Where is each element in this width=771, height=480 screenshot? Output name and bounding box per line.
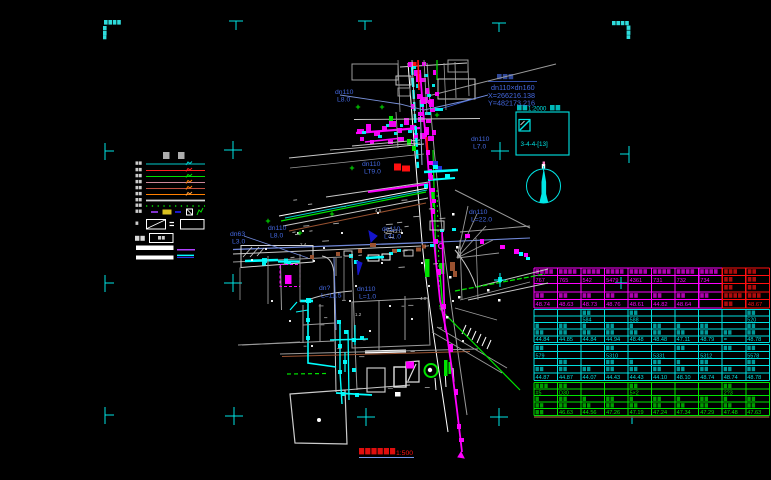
svg-text:LT9.0: LT9.0 (364, 169, 381, 176)
svg-text:47.26: 47.26 (606, 410, 620, 416)
svg-text:4361: 4361 (630, 278, 642, 284)
svg-text:48.48: 48.48 (653, 337, 667, 343)
svg-text:48.74: 48.74 (700, 375, 714, 381)
svg-text:=: = (724, 337, 727, 343)
svg-text:542: 542 (583, 278, 592, 284)
svg-text:dn110: dn110 (471, 136, 490, 143)
svg-text:5312: 5312 (700, 353, 712, 359)
svg-text:1.2: 1.2 (355, 312, 362, 317)
svg-text:48.74: 48.74 (536, 302, 551, 308)
svg-text:4.0: 4.0 (420, 296, 427, 301)
svg-text:48.73: 48.73 (583, 302, 598, 308)
svg-text:48.79: 48.79 (700, 337, 714, 343)
svg-text:44.56: 44.56 (583, 410, 597, 416)
svg-text:584: 584 (583, 317, 592, 323)
svg-text:48.67: 48.67 (748, 302, 763, 308)
svg-text:44.84: 44.84 (536, 337, 550, 343)
svg-text:44.43: 44.43 (606, 375, 620, 381)
svg-text:5×2: 5×2 (630, 390, 639, 396)
svg-text:1:500: 1:500 (396, 450, 413, 457)
svg-text:48.64: 48.64 (677, 302, 692, 308)
svg-text:dn110: dn110 (382, 226, 401, 233)
svg-text:L=22.0: L=22.0 (471, 217, 492, 224)
svg-text:47.48: 47.48 (724, 410, 738, 416)
svg-text:734: 734 (700, 278, 709, 284)
svg-text:48.78: 48.78 (747, 375, 761, 381)
svg-text:44.43: 44.43 (630, 375, 644, 381)
svg-text:L8.0: L8.0 (270, 233, 283, 240)
svg-text:dn63: dn63 (230, 231, 245, 238)
svg-text:dn110: dn110 (357, 286, 376, 293)
svg-text:2?3: 2?3 (724, 390, 733, 396)
svg-text:731: 731 (653, 278, 662, 284)
svg-text:L=1.0: L=1.0 (359, 294, 376, 301)
svg-text:47.19: 47.19 (630, 410, 644, 416)
svg-text:588: 588 (630, 317, 639, 323)
svg-text:48.10: 48.10 (677, 375, 691, 381)
svg-text:767: 767 (536, 278, 545, 284)
svg-text:dn110: dn110 (469, 209, 488, 216)
svg-text:47.24: 47.24 (653, 410, 667, 416)
svg-text:44.10: 44.10 (653, 375, 667, 381)
svg-text:47.29: 47.29 (700, 410, 714, 416)
svg-text:4.5: 4.5 (375, 208, 382, 213)
svg-text:48.63: 48.63 (559, 302, 574, 308)
svg-text:44.82: 44.82 (653, 302, 668, 308)
svg-text:44.87: 44.87 (536, 375, 550, 381)
svg-text:47.11: 47.11 (677, 337, 691, 343)
svg-text:L3.0: L3.0 (232, 239, 245, 246)
svg-text:47.63: 47.63 (747, 410, 761, 416)
svg-text:5331: 5331 (653, 353, 665, 359)
svg-text:L=11.5: L=11.5 (321, 293, 342, 300)
svg-text:48.76: 48.76 (606, 302, 621, 308)
svg-text:5310: 5310 (606, 353, 618, 359)
svg-text:48.61: 48.61 (630, 302, 645, 308)
svg-text:44.07: 44.07 (583, 375, 597, 381)
svg-text:5479: 5479 (606, 278, 618, 284)
svg-text:dn110: dn110 (362, 161, 381, 168)
svg-text:48.48: 48.48 (630, 337, 644, 343)
svg-text:dn110: dn110 (335, 89, 354, 96)
svg-text:44.85: 44.85 (559, 337, 573, 343)
svg-text:dn?: dn? (319, 285, 331, 292)
svg-text:L7.0: L7.0 (473, 144, 486, 151)
svg-text:44.87: 44.87 (559, 375, 573, 381)
svg-text:47.34: 47.34 (677, 410, 691, 416)
svg-text:520: 520 (747, 317, 756, 323)
svg-text:5578: 5578 (747, 353, 759, 359)
svg-text:44.94: 44.94 (606, 337, 620, 343)
svg-text:#5: #5 (536, 390, 542, 396)
svg-text:48.78: 48.78 (747, 337, 761, 343)
svg-text:48.74: 48.74 (724, 375, 738, 381)
svg-text:46.63: 46.63 (559, 410, 573, 416)
svg-text:2.4: 2.4 (300, 242, 307, 247)
svg-text:44.84: 44.84 (583, 337, 597, 343)
svg-text:dn110: dn110 (268, 225, 287, 232)
svg-text:765: 765 (559, 278, 568, 284)
svg-text:579: 579 (536, 353, 545, 359)
svg-text:D30: D30 (559, 390, 569, 396)
svg-text:3-4-4-[13]: 3-4-4-[13] (521, 141, 549, 148)
svg-text:Y=482173.216: Y=482173.216 (488, 99, 535, 108)
svg-text:732: 732 (677, 278, 686, 284)
svg-text:L8.0: L8.0 (337, 97, 350, 104)
